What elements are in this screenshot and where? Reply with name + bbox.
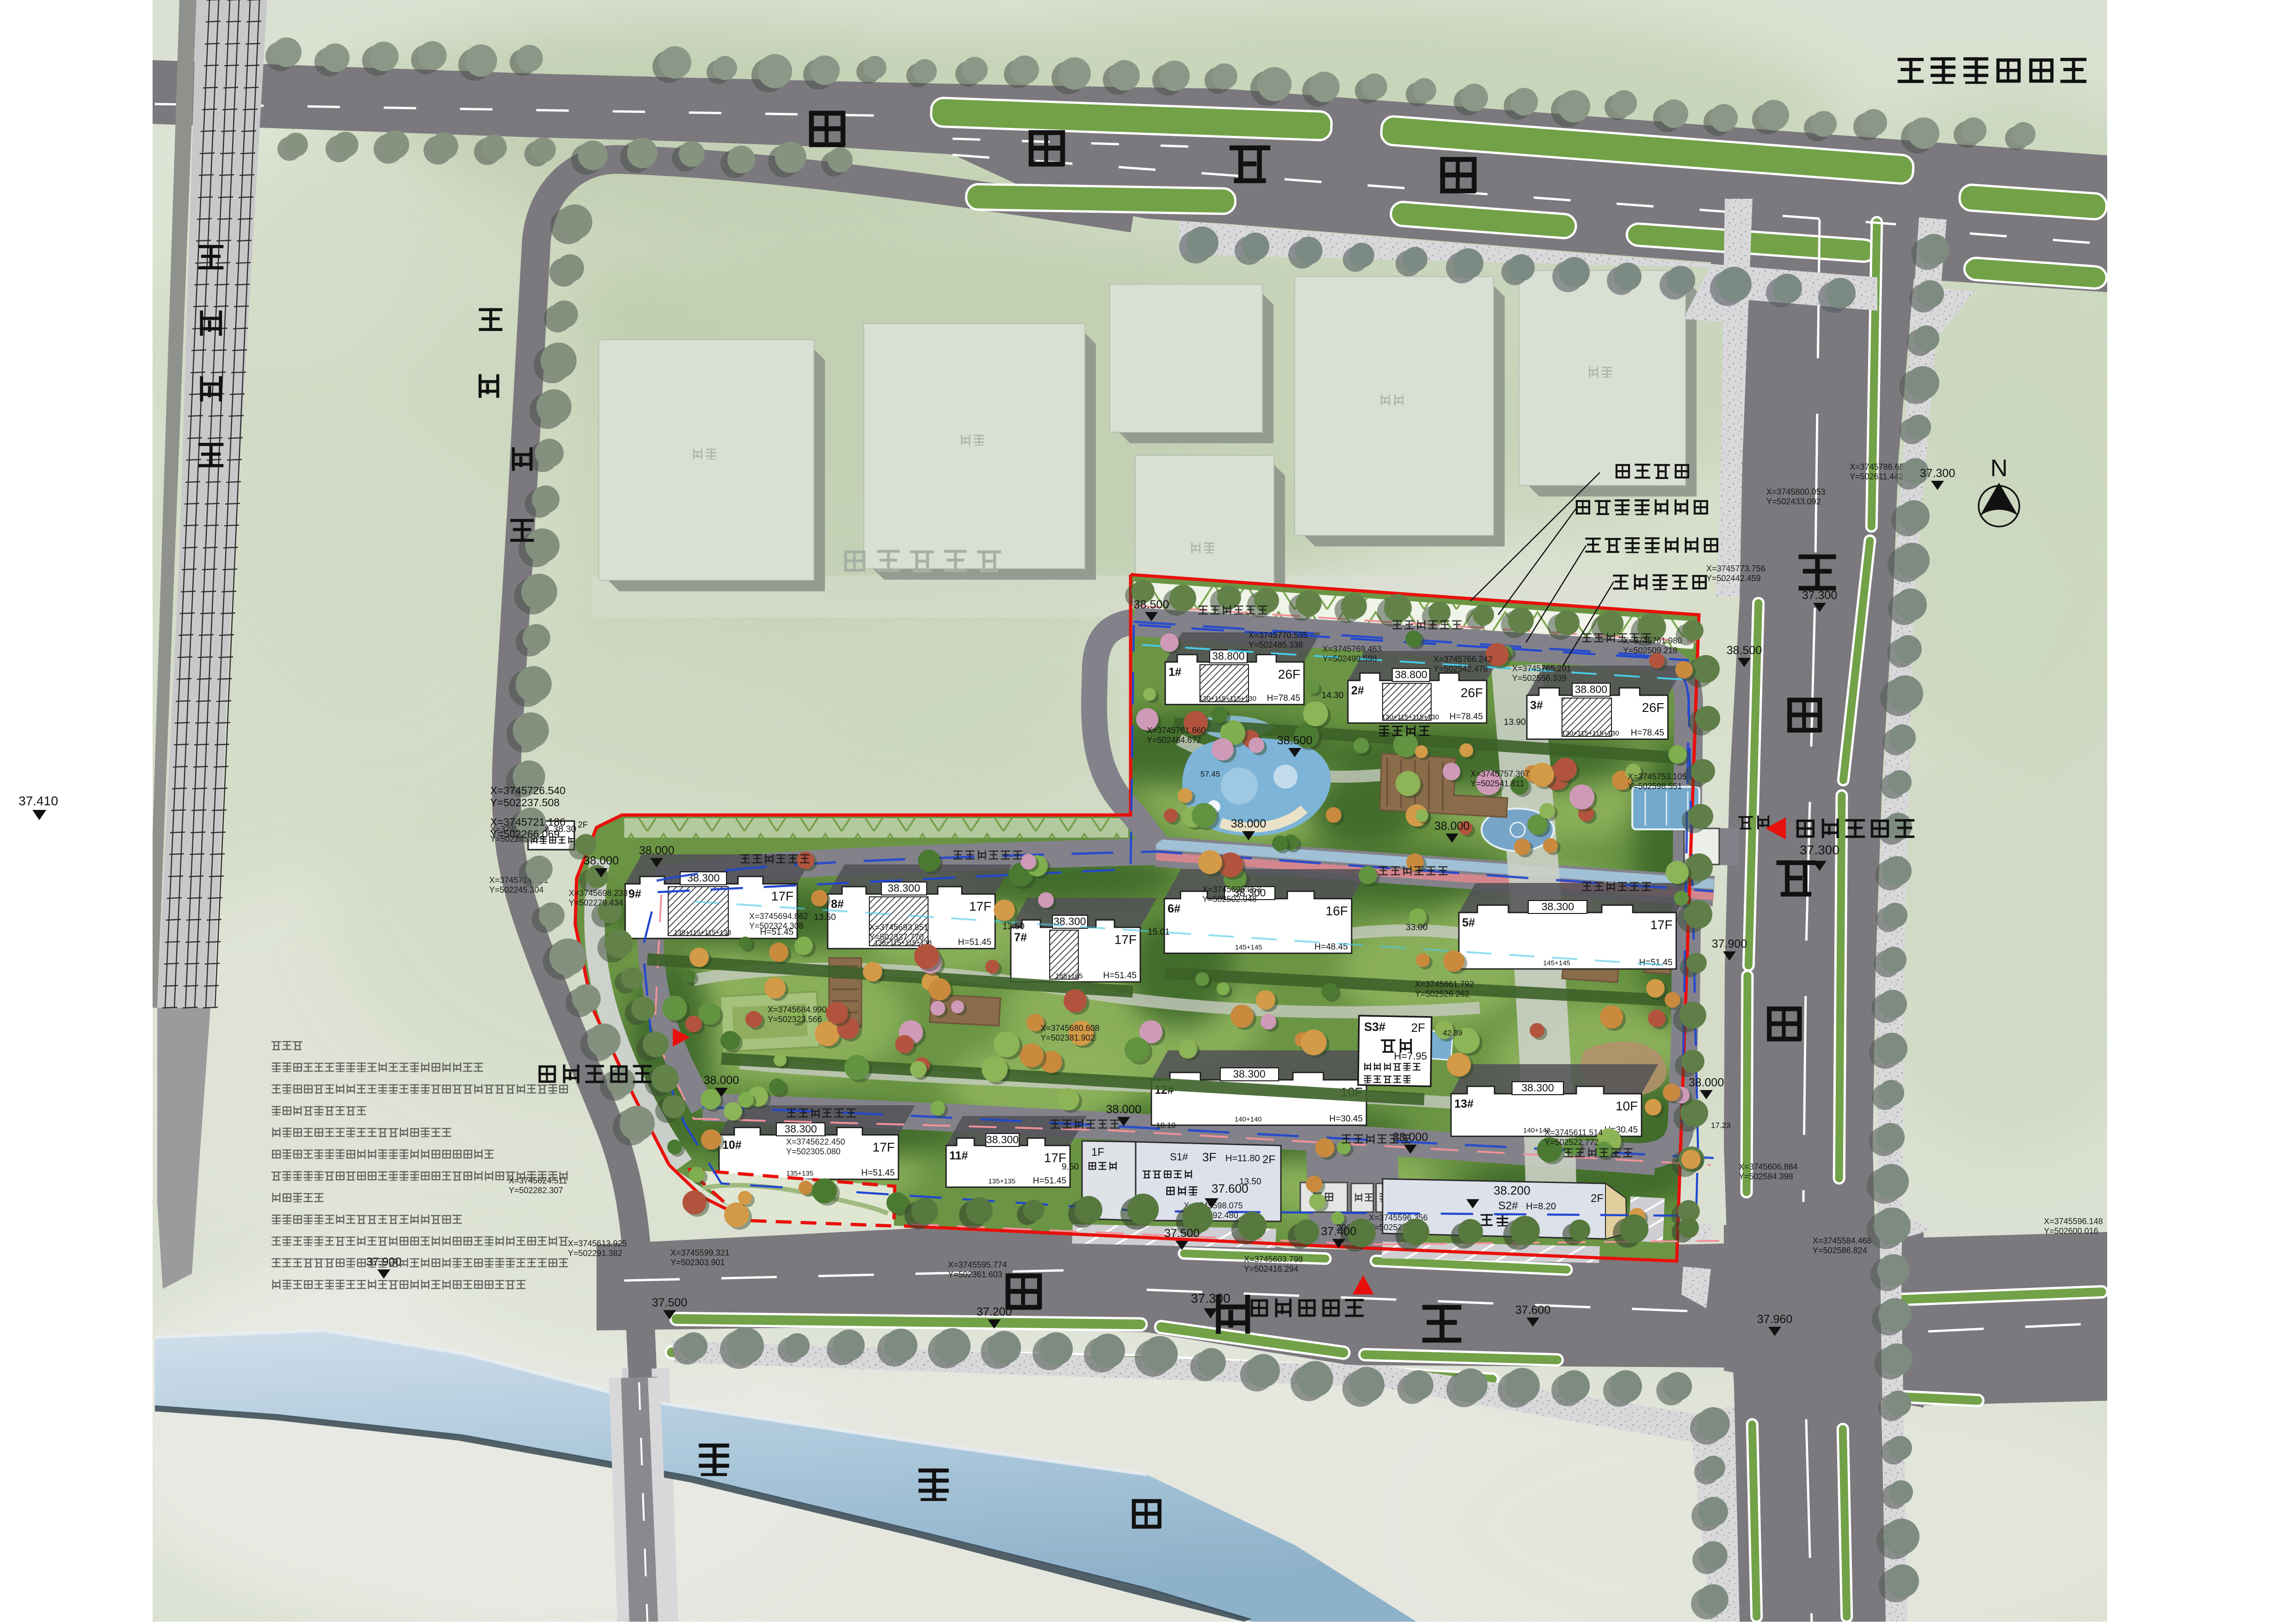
- svg-text:6#: 6#: [1168, 902, 1181, 915]
- svg-text:Y=502303.901: Y=502303.901: [670, 1258, 725, 1267]
- svg-text:26F: 26F: [1461, 686, 1483, 700]
- svg-text:Y=502586.824: Y=502586.824: [1813, 1246, 1867, 1255]
- svg-text:X=3745606.884: X=3745606.884: [1739, 1162, 1798, 1171]
- svg-text:Y=502542.478: Y=502542.478: [1433, 664, 1488, 674]
- svg-text:X=3745757.367: X=3745757.367: [1470, 769, 1530, 778]
- svg-text:38.800: 38.800: [1575, 683, 1607, 695]
- svg-text:2F: 2F: [578, 820, 588, 829]
- svg-text:Y=502541.811: Y=502541.811: [1470, 779, 1524, 788]
- svg-text:2F: 2F: [1411, 1021, 1425, 1035]
- svg-text:38.300: 38.300: [888, 882, 920, 894]
- svg-text:X=3745596.148: X=3745596.148: [2044, 1217, 2103, 1226]
- svg-text:Y=502337.770: Y=502337.770: [869, 932, 924, 942]
- svg-text:Y=502556.339: Y=502556.339: [1512, 674, 1567, 683]
- svg-text:X=3745599.321: X=3745599.321: [670, 1248, 730, 1257]
- svg-text:H=51.45: H=51.45: [861, 1168, 895, 1178]
- svg-text:37.600: 37.600: [1515, 1304, 1550, 1317]
- svg-text:14.30: 14.30: [1322, 691, 1344, 700]
- svg-text:X=3745769.463: X=3745769.463: [1322, 644, 1382, 654]
- svg-text:Y=502600.016: Y=502600.016: [2044, 1226, 2098, 1236]
- svg-text:X=3745622.450: X=3745622.450: [786, 1137, 845, 1146]
- svg-text:Y=502361.603: Y=502361.603: [948, 1270, 1002, 1279]
- svg-text:38.000: 38.000: [584, 854, 619, 867]
- svg-text:37.300: 37.300: [1191, 1291, 1230, 1305]
- svg-text:17F: 17F: [969, 899, 991, 913]
- svg-text:37.400: 37.400: [1321, 1225, 1356, 1238]
- svg-text:H=8.20: H=8.20: [1526, 1201, 1556, 1212]
- svg-text:38.300: 38.300: [1521, 1082, 1554, 1094]
- svg-text:H=51.45: H=51.45: [958, 938, 991, 947]
- svg-text:S3#: S3#: [1364, 1020, 1386, 1034]
- svg-text:37.200: 37.200: [977, 1305, 1012, 1318]
- svg-text:38.500: 38.500: [1277, 734, 1312, 747]
- svg-text:X=3745684.990: X=3745684.990: [768, 1005, 827, 1014]
- svg-text:X=3745761.660: X=3745761.660: [1147, 726, 1206, 735]
- svg-text:38.000: 38.000: [1393, 1131, 1428, 1144]
- svg-text:38.000: 38.000: [1689, 1076, 1724, 1089]
- svg-text:37.900: 37.900: [1712, 938, 1747, 950]
- svg-text:38.300: 38.300: [1542, 901, 1574, 913]
- svg-text:130+115+115+130: 130+115+115+130: [1382, 713, 1439, 721]
- svg-text:130+115+115+130: 130+115+115+130: [1562, 729, 1619, 737]
- svg-text:Y=502499.598: Y=502499.598: [1322, 654, 1377, 663]
- svg-text:Y=502509.218: Y=502509.218: [1623, 646, 1678, 655]
- svg-text:11#: 11#: [949, 1149, 968, 1162]
- svg-text:15.01: 15.01: [1148, 927, 1170, 937]
- svg-text:X=3745680.608: X=3745680.608: [1040, 1023, 1100, 1033]
- svg-text:Y=502291.382: Y=502291.382: [568, 1249, 622, 1258]
- svg-text:X=3745695.053: X=3745695.053: [1202, 885, 1261, 894]
- svg-text:38.000: 38.000: [639, 844, 674, 857]
- svg-text:Y=502433.092: Y=502433.092: [1766, 497, 1821, 506]
- svg-text:130+115+115+130: 130+115+115+130: [1199, 695, 1256, 703]
- svg-text:Y=502598.551: Y=502598.551: [1628, 782, 1682, 791]
- svg-text:16F: 16F: [1326, 904, 1348, 918]
- svg-text:38.300: 38.300: [986, 1134, 1019, 1146]
- svg-text:X=3745661.792: X=3745661.792: [1415, 980, 1474, 989]
- svg-text:9#: 9#: [628, 888, 641, 901]
- svg-text:37.300: 37.300: [1800, 843, 1839, 857]
- svg-text:26F: 26F: [1278, 667, 1300, 681]
- svg-text:37.500: 37.500: [1164, 1227, 1199, 1240]
- svg-text:H=78.45: H=78.45: [1450, 712, 1483, 722]
- svg-text:38.500: 38.500: [1134, 598, 1169, 611]
- svg-text:13#: 13#: [1454, 1097, 1474, 1110]
- svg-text:Y=502237.508: Y=502237.508: [490, 797, 560, 809]
- svg-text:H=51.45: H=51.45: [1103, 971, 1137, 981]
- svg-text:Y=502442.459: Y=502442.459: [1706, 574, 1761, 583]
- svg-text:37.500: 37.500: [652, 1296, 687, 1309]
- svg-text:X=3745721.186: X=3745721.186: [490, 816, 566, 828]
- svg-text:145+145: 145+145: [1235, 944, 1262, 951]
- svg-text:38.800: 38.800: [1395, 668, 1427, 680]
- svg-text:H=30.45: H=30.45: [1329, 1114, 1363, 1124]
- svg-text:7#: 7#: [1014, 931, 1027, 944]
- svg-text:2F: 2F: [1591, 1192, 1604, 1205]
- svg-text:38.300: 38.300: [784, 1123, 817, 1135]
- svg-text:X=3745726.540: X=3745726.540: [490, 784, 566, 797]
- svg-text:S1#: S1#: [1170, 1151, 1188, 1163]
- svg-text:37.960: 37.960: [1757, 1313, 1792, 1326]
- svg-text:X=3745584.468: X=3745584.468: [1813, 1236, 1872, 1245]
- svg-text:38.000: 38.000: [704, 1074, 739, 1087]
- svg-text:H=78.45: H=78.45: [1631, 728, 1664, 738]
- svg-text:Y=502323.566: Y=502323.566: [768, 1015, 822, 1024]
- svg-text:Y=502526.262: Y=502526.262: [1415, 989, 1470, 999]
- svg-text:Y=502584.398: Y=502584.398: [1739, 1172, 1793, 1181]
- svg-text:Y=502381.902: Y=502381.902: [1040, 1033, 1095, 1042]
- svg-text:10F: 10F: [1616, 1099, 1638, 1113]
- svg-text:33.00: 33.00: [1406, 923, 1428, 932]
- svg-text:Y=502484.672: Y=502484.672: [1147, 735, 1201, 745]
- svg-text:Y=502266.069: Y=502266.069: [490, 828, 560, 840]
- svg-text:38.200: 38.200: [1494, 1183, 1531, 1197]
- svg-text:13.50: 13.50: [814, 913, 836, 922]
- svg-text:X=3745761.980: X=3745761.980: [1623, 636, 1682, 645]
- svg-text:13.50: 13.50: [1239, 1177, 1261, 1187]
- svg-text:38.000: 38.000: [1231, 817, 1266, 830]
- svg-text:10#: 10#: [722, 1139, 742, 1152]
- svg-text:H=7.95: H=7.95: [1394, 1050, 1427, 1062]
- svg-text:Y=502279.434: Y=502279.434: [569, 898, 623, 907]
- svg-text:17F: 17F: [873, 1140, 895, 1154]
- svg-text:57.45: 57.45: [1200, 770, 1220, 778]
- svg-text:17F: 17F: [771, 889, 793, 903]
- svg-text:37.300: 37.300: [1920, 467, 1955, 480]
- svg-text:9.50: 9.50: [1062, 1162, 1079, 1172]
- svg-text:1#: 1#: [1169, 666, 1181, 679]
- svg-text:Y=502324.308: Y=502324.308: [749, 921, 804, 931]
- svg-text:X=3745773.756: X=3745773.756: [1706, 564, 1765, 573]
- svg-text:X=3745766.242: X=3745766.242: [1433, 655, 1493, 664]
- svg-text:135+135: 135+135: [988, 1177, 1015, 1185]
- svg-text:138+115+115+138: 138+115+115+138: [674, 929, 731, 937]
- svg-text:X=3745753.105: X=3745753.105: [1628, 772, 1687, 781]
- svg-text:1F: 1F: [1091, 1146, 1104, 1158]
- svg-text:13.50: 13.50: [1002, 922, 1025, 932]
- svg-text:Y=502282.307: Y=502282.307: [509, 1186, 563, 1195]
- svg-text:17.23: 17.23: [1711, 1121, 1731, 1130]
- svg-text:N: N: [1990, 455, 2008, 482]
- svg-text:X=3745603.798: X=3745603.798: [1244, 1255, 1303, 1264]
- svg-text:2F: 2F: [1262, 1153, 1275, 1166]
- svg-text:8#: 8#: [831, 898, 844, 911]
- svg-text:X=3745613.925: X=3745613.925: [568, 1239, 627, 1248]
- svg-text:X=3745595.774: X=3745595.774: [948, 1260, 1007, 1269]
- svg-text:38.000: 38.000: [1106, 1103, 1141, 1116]
- svg-text:26F: 26F: [1642, 700, 1664, 715]
- svg-text:42.39: 42.39: [1443, 1029, 1463, 1037]
- svg-text:X=3745694.862: X=3745694.862: [749, 912, 808, 921]
- svg-text:17F: 17F: [1114, 932, 1137, 947]
- svg-text:X=3745765.201: X=3745765.201: [1512, 664, 1571, 673]
- svg-text:Y=502485.338: Y=502485.338: [1248, 640, 1303, 650]
- svg-text:X=3745611.514: X=3745611.514: [1544, 1128, 1603, 1137]
- svg-text:Y=502416.294: Y=502416.294: [1244, 1264, 1298, 1274]
- svg-text:X=3745698.233: X=3745698.233: [569, 889, 628, 898]
- svg-text:145+145: 145+145: [1543, 959, 1570, 967]
- svg-text:X=3745800.053: X=3745800.053: [1766, 487, 1826, 496]
- svg-text:H=78.45: H=78.45: [1267, 693, 1300, 703]
- svg-text:13.90: 13.90: [1504, 717, 1526, 727]
- svg-text:18.10: 18.10: [1156, 1121, 1176, 1130]
- svg-text:3#: 3#: [1530, 699, 1543, 712]
- svg-text:H=51.45: H=51.45: [1033, 1176, 1066, 1186]
- svg-text:H=11.80: H=11.80: [1225, 1153, 1260, 1164]
- svg-text:Y=502502.948: Y=502502.948: [1202, 895, 1257, 904]
- svg-text:Y=502522.772: Y=502522.772: [1544, 1138, 1599, 1147]
- svg-text:38.300: 38.300: [1233, 1068, 1265, 1080]
- svg-text:140+140: 140+140: [1235, 1115, 1262, 1123]
- svg-text:5#: 5#: [1462, 916, 1475, 929]
- svg-text:X=3745770.535: X=3745770.535: [1248, 631, 1308, 640]
- svg-text:X=3745693.851: X=3745693.851: [869, 923, 929, 932]
- svg-text:37.410: 37.410: [18, 794, 58, 808]
- svg-text:2#: 2#: [1351, 684, 1364, 697]
- svg-text:S2#: S2#: [1498, 1200, 1518, 1212]
- svg-text:38.500: 38.500: [1727, 644, 1762, 657]
- svg-text:38.000: 38.000: [1434, 820, 1470, 833]
- svg-text:17F: 17F: [1650, 918, 1673, 932]
- svg-text:37.300: 37.300: [1802, 589, 1837, 602]
- svg-text:Y=502305.080: Y=502305.080: [786, 1147, 841, 1156]
- svg-text:3F: 3F: [1202, 1150, 1216, 1164]
- svg-text:165+165: 165+165: [1056, 972, 1083, 980]
